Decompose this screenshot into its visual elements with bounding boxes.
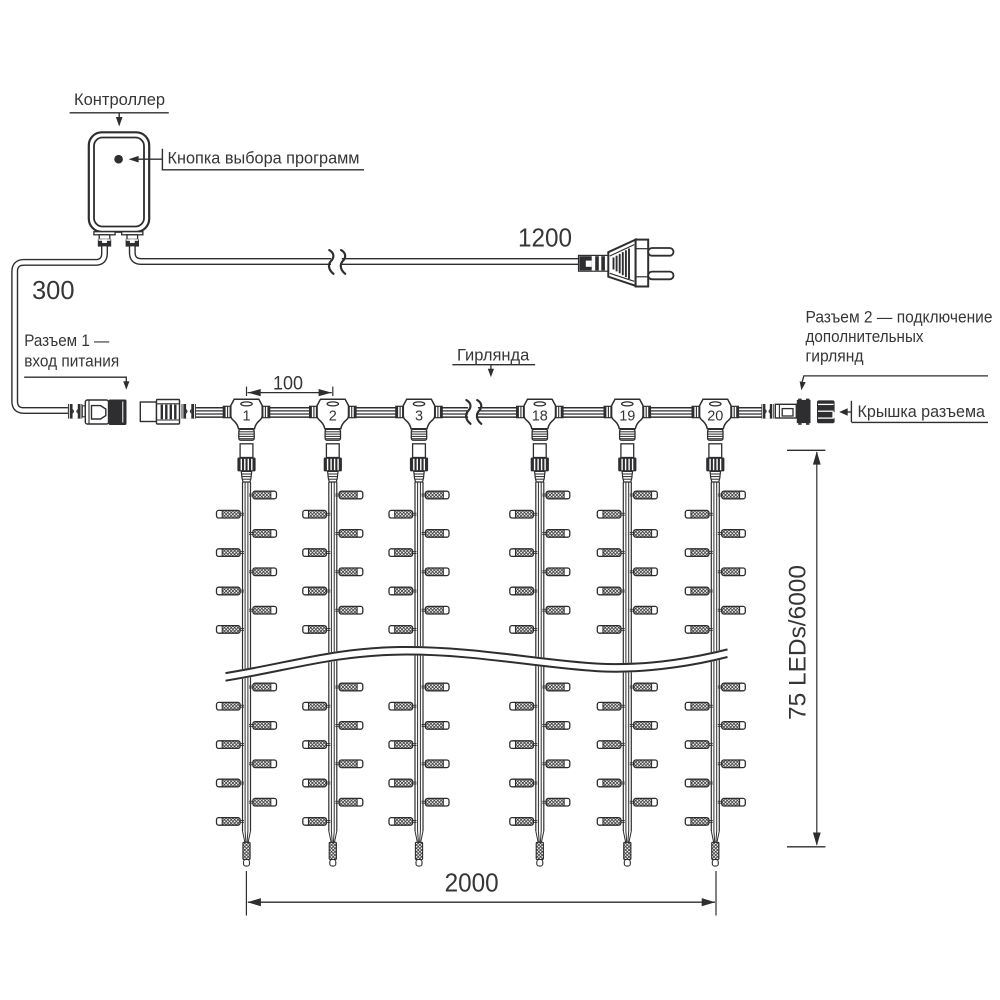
svg-text:Контроллер: Контроллер — [74, 91, 165, 109]
svg-text:100: 100 — [273, 374, 303, 395]
svg-text:дополнительных: дополнительных — [806, 328, 925, 346]
svg-text:19: 19 — [619, 409, 635, 425]
svg-text:Крышка разъема: Крышка разъема — [858, 403, 986, 421]
svg-text:3: 3 — [415, 409, 423, 425]
svg-text:Кнопка выбора программ: Кнопка выбора программ — [168, 150, 360, 168]
svg-text:1: 1 — [242, 409, 250, 425]
svg-text:20: 20 — [707, 409, 723, 425]
svg-text:2: 2 — [329, 409, 337, 425]
svg-text:18: 18 — [532, 409, 548, 425]
svg-text:300: 300 — [32, 277, 75, 305]
svg-text:гирлянд: гирлянд — [806, 348, 864, 366]
svg-text:Разъем 2 — подключение: Разъем 2 — подключение — [806, 308, 993, 326]
svg-text:75 LEDs/6000: 75 LEDs/6000 — [785, 565, 812, 720]
svg-text:Гирлянда: Гирлянда — [457, 346, 530, 364]
svg-text:2000: 2000 — [445, 870, 499, 898]
svg-text:1200: 1200 — [518, 225, 572, 253]
svg-text:вход питания: вход питания — [24, 352, 119, 370]
svg-text:Разъем 1 —: Разъем 1 — — [24, 332, 109, 350]
